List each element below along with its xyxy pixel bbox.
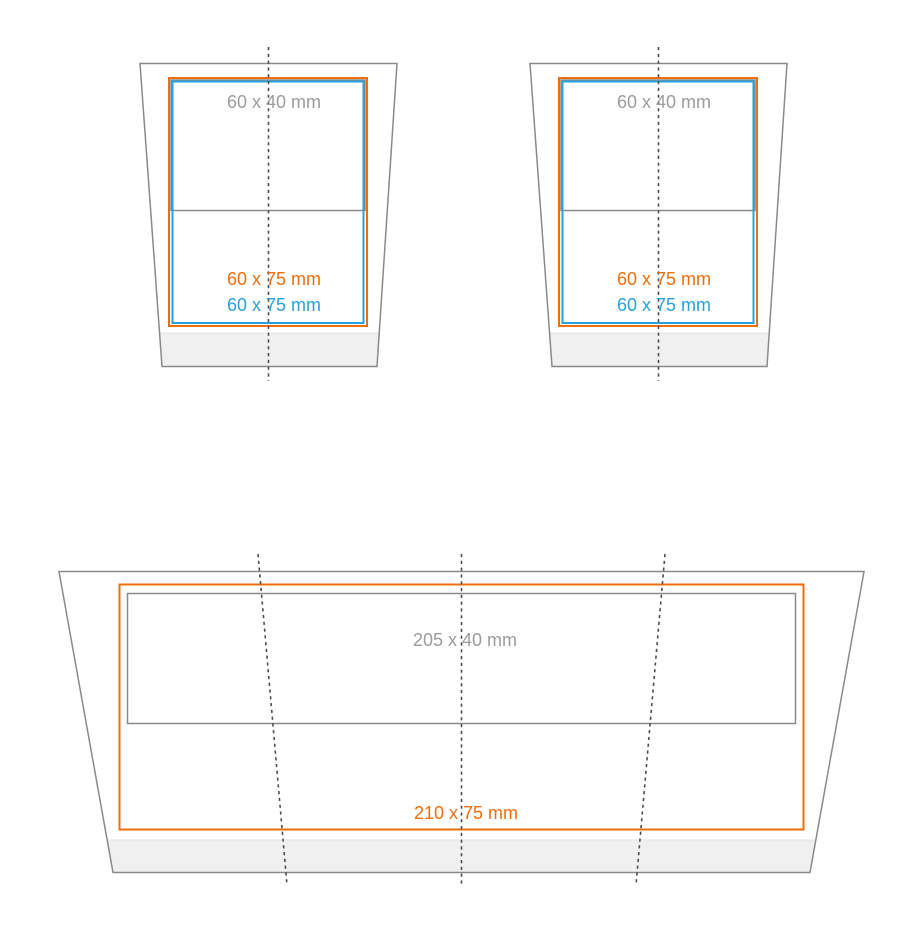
cup-bottom-wrap: 205 x 40 mm 210 x 75 mm: [59, 554, 864, 885]
max-area-label-blue: 60 x 75 mm: [227, 295, 321, 315]
max-area-label-blue: 60 x 75 mm: [617, 295, 711, 315]
cup-print-area-diagram: 60 x 40 mm 60 x 75 mm 60 x 75 mm 60 x 40…: [0, 0, 900, 949]
print-area-label: 205 x 40 mm: [413, 630, 517, 650]
fold-axis-dotted-line-right: [636, 554, 665, 885]
cup-bottom-band: [550, 333, 770, 367]
diagram-svg: 60 x 40 mm 60 x 75 mm 60 x 75 mm 60 x 40…: [0, 0, 900, 949]
max-area-label-orange: 60 x 75 mm: [227, 269, 321, 289]
max-area-label-orange: 60 x 75 mm: [617, 269, 711, 289]
print-area-label: 60 x 40 mm: [617, 92, 711, 112]
cup-top-right: 60 x 40 mm 60 x 75 mm 60 x 75 mm: [530, 47, 787, 381]
cup-top-left: 60 x 40 mm 60 x 75 mm 60 x 75 mm: [140, 47, 397, 381]
print-area-label: 60 x 40 mm: [227, 92, 321, 112]
max-area-label-orange: 210 x 75 mm: [414, 803, 518, 823]
fold-axis-dotted-line-left: [258, 554, 287, 885]
cup-bottom-band: [160, 333, 380, 367]
